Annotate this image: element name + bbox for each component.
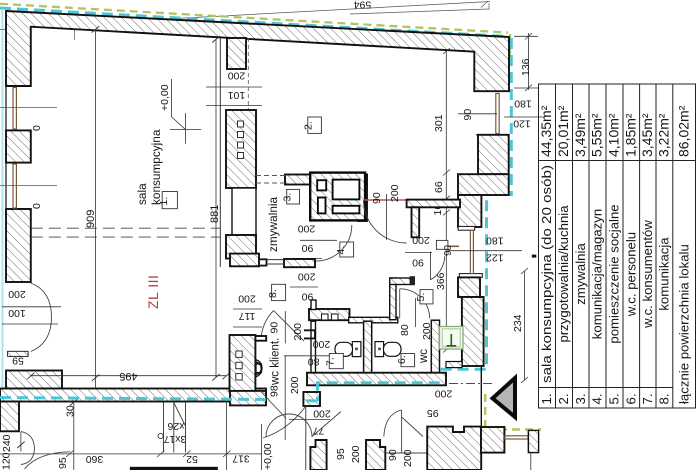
svg-text:4.: 4.	[590, 394, 605, 405]
svg-text:77: 77	[313, 425, 325, 437]
svg-text:90: 90	[269, 322, 281, 334]
svg-text:2.: 2.	[556, 394, 571, 405]
svg-text:200: 200	[435, 388, 453, 400]
svg-text:66: 66	[433, 181, 445, 193]
svg-text:200: 200	[313, 408, 331, 420]
svg-text:95: 95	[335, 448, 347, 460]
svg-text:sala: sala	[135, 183, 149, 205]
svg-text:98: 98	[269, 385, 281, 397]
svg-text:zmywalnia: zmywalnia	[266, 196, 280, 252]
svg-text:8.: 8.	[267, 289, 279, 298]
svg-text:101: 101	[228, 89, 246, 101]
svg-text:200: 200	[228, 70, 246, 82]
svg-text:30: 30	[65, 405, 77, 417]
svg-text:3,49m²: 3,49m²	[572, 113, 588, 157]
svg-text:3.: 3.	[282, 193, 294, 202]
svg-text:6.: 6.	[396, 355, 408, 364]
svg-text:3,22m²: 3,22m²	[656, 113, 672, 157]
svg-text:100: 100	[8, 307, 26, 319]
svg-text:86,02m²: 86,02m²	[675, 105, 691, 157]
svg-text:594: 594	[354, 0, 372, 11]
svg-text:200: 200	[289, 376, 301, 394]
svg-text:200: 200	[402, 449, 414, 467]
svg-text:90: 90	[387, 449, 399, 461]
svg-text:w.c. personelu: w.c. personelu	[624, 232, 639, 317]
svg-text:łącznie powierzchnia lokalu: łącznie powierzchnia lokalu	[676, 244, 691, 404]
svg-text:200: 200	[313, 338, 331, 350]
svg-text:5.: 5.	[607, 394, 622, 405]
svg-text:90: 90	[371, 192, 383, 204]
svg-text:6.: 6.	[624, 394, 639, 405]
svg-text:317: 317	[232, 453, 250, 465]
svg-text:komunikacja: komunikacja	[657, 237, 672, 311]
svg-text:240: 240	[1, 434, 13, 452]
svg-text:136: 136	[520, 58, 532, 76]
svg-text:180: 180	[486, 235, 504, 247]
svg-text:3,45m²: 3,45m²	[639, 113, 655, 157]
svg-text:52: 52	[186, 453, 198, 465]
svg-text:80: 80	[308, 356, 320, 368]
svg-text:881: 881	[209, 205, 221, 223]
svg-text:90: 90	[443, 244, 454, 256]
svg-text:200: 200	[412, 234, 430, 246]
svg-text:3x17: 3x17	[163, 433, 186, 445]
svg-text:95: 95	[427, 407, 439, 419]
svg-text:pomieszczenie socjalne: pomieszczenie socjalne	[607, 204, 622, 343]
svg-text:x26: x26	[167, 420, 184, 432]
svg-text:80: 80	[399, 324, 411, 336]
svg-text:180: 180	[514, 98, 532, 110]
svg-text:komunikacja/magazyn: komunikacja/magazyn	[590, 209, 605, 339]
svg-text:301: 301	[433, 114, 445, 132]
svg-text:przygotowalnia/kuchnia: przygotowalnia/kuchnia	[556, 205, 571, 343]
svg-text:+0,00: +0,00	[159, 84, 171, 111]
svg-text:200: 200	[8, 288, 26, 300]
svg-text:4,10m²: 4,10m²	[606, 113, 622, 157]
svg-text:360: 360	[86, 453, 104, 465]
svg-text:90: 90	[462, 109, 474, 121]
svg-text:90: 90	[412, 257, 424, 269]
svg-text:1.: 1.	[158, 197, 170, 206]
svg-text:120: 120	[513, 118, 531, 130]
svg-text:95: 95	[57, 457, 69, 469]
svg-text:3.: 3.	[573, 394, 588, 405]
svg-text:59: 59	[12, 355, 24, 367]
svg-text:0: 0	[31, 125, 43, 131]
svg-text:5.: 5.	[415, 293, 427, 302]
svg-text:+0,00: +0,00	[262, 443, 274, 470]
svg-text:sala konsumpcyjna (do 20 osób): sala konsumpcyjna (do 20 osób)	[539, 165, 554, 383]
svg-text:909: 909	[85, 210, 97, 228]
svg-text:wc: wc	[418, 349, 430, 364]
svg-text:122: 122	[486, 252, 504, 264]
svg-text:234: 234	[512, 314, 524, 332]
svg-text:200: 200	[298, 271, 316, 283]
svg-text:5,55m²: 5,55m²	[589, 113, 605, 157]
svg-text:1.: 1.	[539, 394, 554, 405]
svg-text:200: 200	[350, 445, 362, 463]
svg-text:8.: 8.	[657, 394, 672, 405]
svg-text:konsumpcyjna: konsumpcyjna	[149, 129, 163, 205]
svg-text:20,01m²: 20,01m²	[555, 105, 571, 157]
svg-text:w.c. konsumentów: w.c. konsumentów	[640, 220, 655, 329]
svg-text:zmywalnia: zmywalnia	[573, 243, 588, 305]
svg-text:7.: 7.	[640, 394, 655, 405]
svg-text:0: 0	[31, 203, 43, 209]
svg-text:200: 200	[389, 184, 401, 202]
svg-text:2.: 2.	[303, 121, 315, 130]
svg-text:90: 90	[302, 242, 314, 254]
svg-text:120: 120	[1, 452, 13, 470]
svg-text:495: 495	[119, 370, 137, 382]
svg-text:ZL III: ZL III	[145, 275, 161, 309]
svg-text:1,85m²: 1,85m²	[623, 113, 639, 157]
svg-text:200: 200	[292, 323, 304, 341]
svg-text:200: 200	[298, 223, 316, 235]
svg-text:117: 117	[238, 310, 255, 322]
svg-text:44,35m²: 44,35m²	[538, 105, 554, 157]
svg-text:200: 200	[238, 293, 256, 305]
svg-text:wc klient.: wc klient.	[270, 338, 282, 386]
svg-text:7.: 7.	[325, 357, 337, 366]
